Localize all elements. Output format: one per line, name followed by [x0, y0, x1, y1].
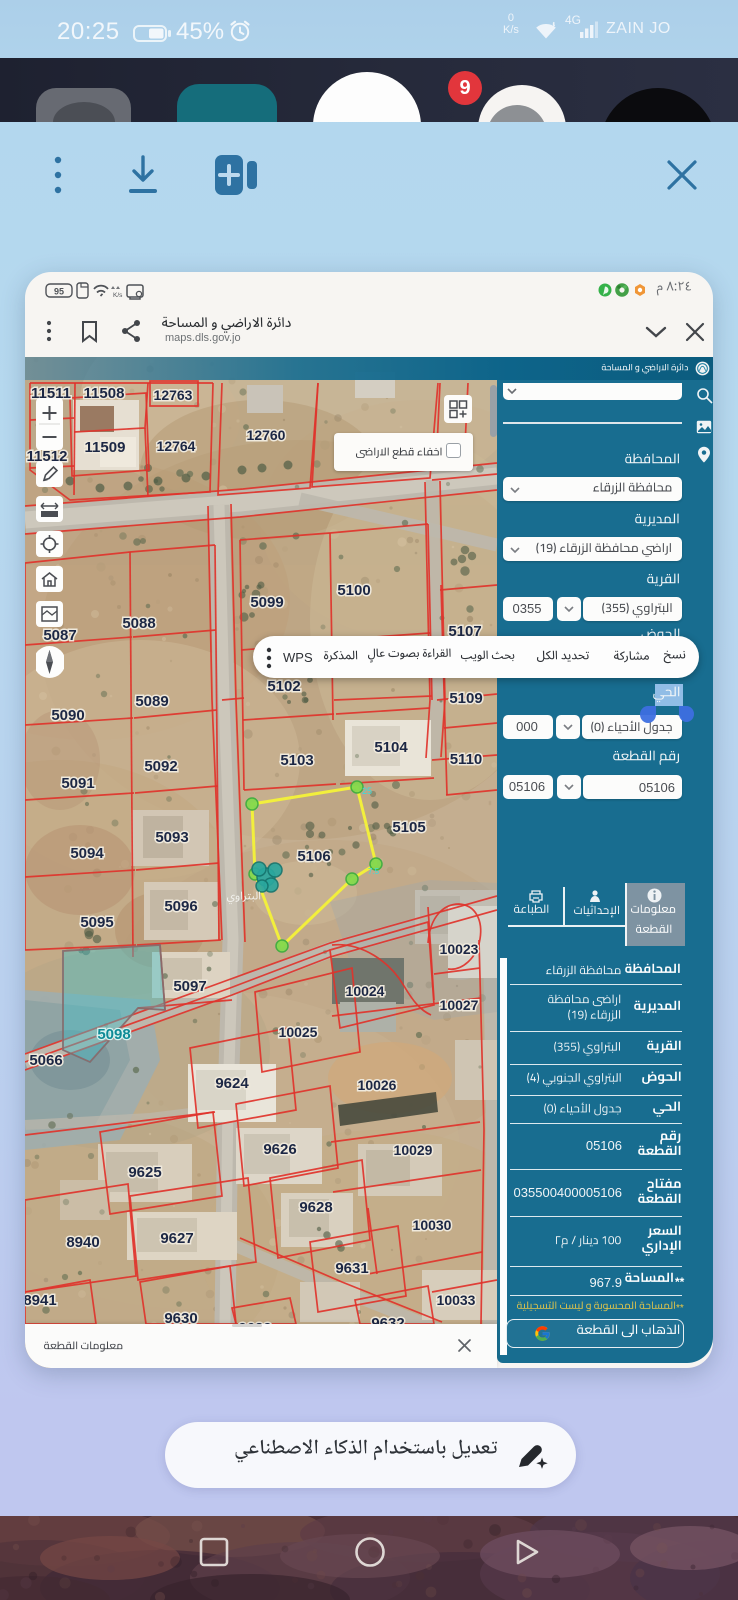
svg-text:5096: 5096	[164, 898, 197, 915]
svg-text:12763: 12763	[154, 387, 193, 403]
svg-text:9624: 9624	[215, 1075, 249, 1092]
svg-text:5094: 5094	[70, 845, 104, 862]
svg-text:10023: 10023	[440, 941, 479, 957]
svg-text:8941: 8941	[25, 1292, 57, 1309]
svg-text:5092: 5092	[144, 758, 177, 775]
svg-text:5109: 5109	[449, 690, 482, 707]
svg-text:5100: 5100	[337, 582, 370, 599]
svg-text:95: 95	[54, 287, 64, 297]
svg-text:8940: 8940	[66, 1234, 99, 1251]
svg-text:11508: 11508	[84, 385, 125, 402]
svg-text:5106: 5106	[297, 848, 330, 865]
svg-text:5098: 5098	[97, 1026, 130, 1043]
svg-text:10027: 10027	[440, 997, 479, 1013]
svg-text:5104: 5104	[374, 739, 408, 756]
svg-text:5090: 5090	[51, 707, 84, 724]
svg-text:11509: 11509	[85, 439, 126, 456]
svg-text:10024: 10024	[346, 983, 385, 999]
svg-text:12764: 12764	[157, 438, 196, 454]
svg-text:5093: 5093	[155, 829, 188, 846]
svg-text:12760: 12760	[247, 427, 286, 443]
svg-text:5110: 5110	[450, 751, 483, 768]
svg-text:5088: 5088	[122, 615, 155, 632]
svg-text:5097: 5097	[173, 978, 206, 995]
svg-text:5091: 5091	[61, 775, 94, 792]
svg-text:5066: 5066	[29, 1052, 62, 1069]
svg-text:25: 25	[362, 786, 372, 796]
svg-text:K/s: K/s	[113, 292, 123, 299]
svg-text:5099: 5099	[250, 594, 283, 611]
svg-text:7.5: 7.5	[368, 867, 380, 876]
svg-text:5102: 5102	[267, 678, 300, 695]
svg-text:10026: 10026	[358, 1077, 397, 1093]
svg-text:9625: 9625	[128, 1164, 161, 1181]
svg-text:5103: 5103	[280, 752, 313, 769]
svg-text:5105: 5105	[392, 819, 425, 836]
svg-text:10033: 10033	[437, 1292, 476, 1308]
svg-text:9627: 9627	[160, 1230, 193, 1247]
svg-text:10025: 10025	[279, 1024, 318, 1040]
svg-text:5089: 5089	[135, 693, 168, 710]
svg-text:5095: 5095	[80, 914, 113, 931]
svg-text:10030: 10030	[413, 1217, 452, 1233]
svg-text:9628: 9628	[299, 1199, 332, 1216]
